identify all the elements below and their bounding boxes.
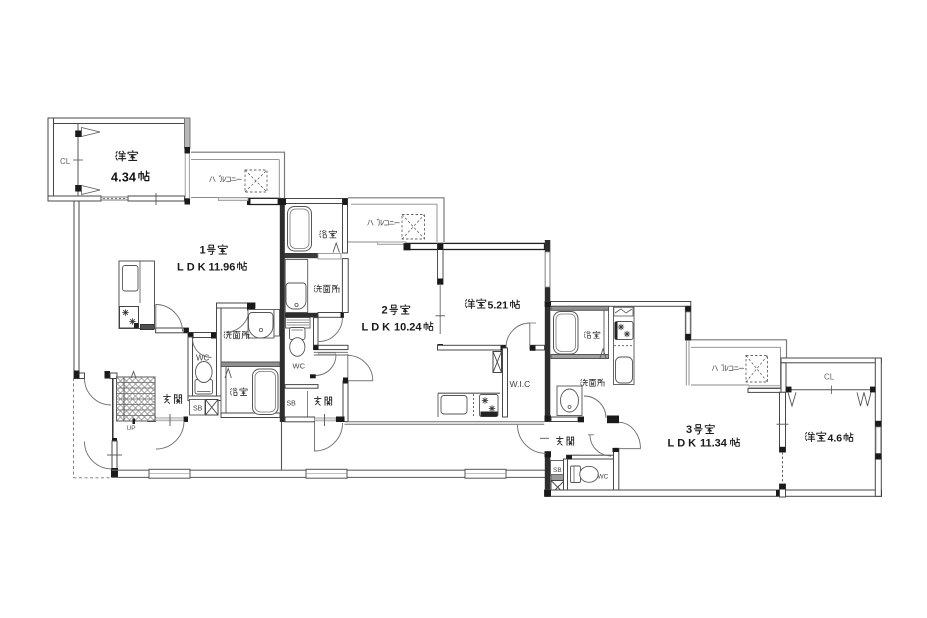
svg-text:WC: WC [196,354,210,363]
svg-text:LDK: LDK [362,322,394,334]
svg-text:SB: SB [287,401,297,408]
svg-text:WC: WC [598,474,609,481]
svg-text:WC: WC [293,362,306,371]
svg-text:4.34: 4.34 [111,171,136,185]
svg-text:5.21: 5.21 [488,300,509,312]
svg-text:3: 3 [686,424,692,436]
svg-text:LDK: LDK [668,438,700,450]
svg-text:UP: UP [127,425,136,432]
svg-text:10.24: 10.24 [394,322,422,334]
svg-text:2: 2 [382,305,388,317]
svg-text:SB: SB [553,467,562,474]
svg-text:11.96: 11.96 [209,262,236,274]
svg-text:4.6: 4.6 [828,433,843,445]
svg-text:11.34: 11.34 [700,438,728,450]
svg-text:1: 1 [200,245,206,257]
svg-text:W.I.C: W.I.C [510,379,531,389]
svg-text:CL: CL [824,373,835,382]
svg-text:CL: CL [60,157,71,166]
svg-text:SB: SB [193,406,203,413]
svg-text:LDK: LDK [177,262,209,274]
